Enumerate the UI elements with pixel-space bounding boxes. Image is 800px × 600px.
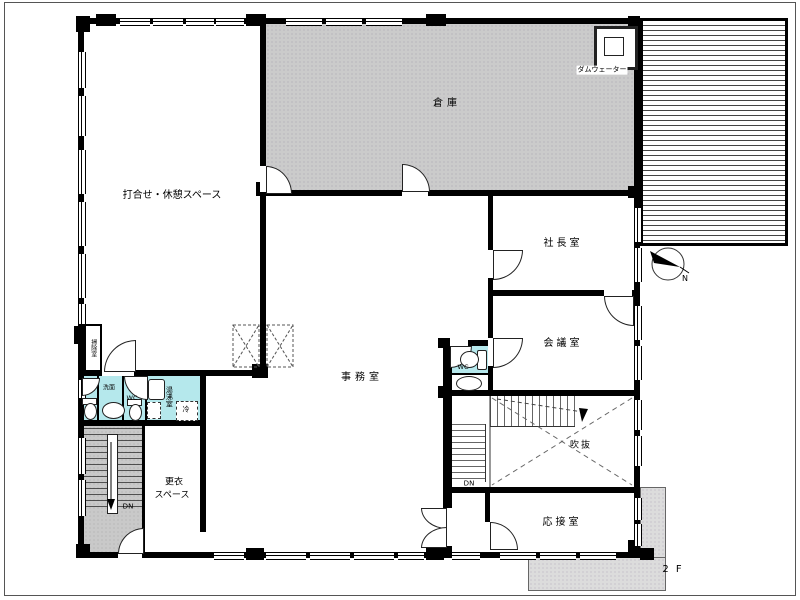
wall-reception-north <box>452 487 640 493</box>
label-atrium: 吹抜 <box>570 440 592 451</box>
column <box>426 548 444 560</box>
window <box>214 552 244 560</box>
label-changing-space-1: 更衣 <box>165 477 183 488</box>
column <box>76 16 90 32</box>
wall-junction <box>252 364 268 378</box>
column <box>246 548 264 560</box>
window <box>286 18 322 26</box>
window <box>398 552 424 560</box>
toilet-bowl-icon <box>129 404 142 421</box>
washbasin-icon <box>456 376 482 391</box>
label-washroom: 洗面 <box>103 384 115 392</box>
label-cleaning-room: 掃除室 <box>89 339 97 357</box>
window <box>326 18 362 26</box>
wall-corner-step <box>640 548 654 560</box>
label-office: 事務室 <box>341 372 383 385</box>
wall-reception-west <box>485 493 490 522</box>
wall-junction <box>438 386 452 398</box>
sink-unit-icon <box>148 379 165 400</box>
window <box>78 480 86 516</box>
column <box>426 14 446 26</box>
window <box>120 18 150 26</box>
dumbwaiter-car-icon <box>604 37 624 56</box>
label-stair-dn-left: DN <box>123 503 134 512</box>
window <box>78 150 86 194</box>
window <box>634 400 642 430</box>
window <box>366 18 402 26</box>
label-meeting-space: 打合せ・休憩スペース <box>123 190 222 203</box>
window <box>78 202 86 246</box>
window <box>452 552 480 560</box>
label-changing-space-2: スペース <box>155 490 190 501</box>
label-refrigerator: 冷 <box>183 406 190 415</box>
label-presidents-office: 社長室 <box>544 238 583 251</box>
window <box>634 306 642 340</box>
label-reception-room: 応接室 <box>543 517 582 530</box>
window <box>78 254 86 298</box>
window <box>266 552 306 560</box>
window <box>634 346 642 380</box>
column <box>96 14 116 26</box>
counter-dashed-icon <box>147 402 161 419</box>
column <box>76 544 90 558</box>
roof-hatch-area <box>640 18 788 246</box>
stair-handrail <box>107 434 118 514</box>
wall-warehouse-south <box>266 190 640 196</box>
label-floor-2f: 2 F <box>662 564 683 577</box>
wall-junction <box>438 338 450 348</box>
balcony-bottom <box>528 557 666 591</box>
label-wc-left: WC <box>127 394 138 402</box>
window <box>634 524 642 546</box>
window <box>634 248 642 282</box>
window <box>634 436 642 466</box>
toilet-bowl-icon <box>84 403 97 420</box>
window <box>78 304 86 324</box>
label-wc-office: WC <box>458 363 469 371</box>
stair-treads-right-lower <box>452 424 486 482</box>
label-warehouse: 倉庫 <box>433 98 461 111</box>
stair-treads-right-upper <box>490 396 575 427</box>
floor-plan-2f: 打合せ・休憩スペース 倉庫 ダムウェーター 社長室 会議室 事務室 吹抜 応接室… <box>0 0 800 600</box>
window <box>580 552 616 560</box>
window <box>354 552 394 560</box>
wall-junction <box>628 186 640 198</box>
wall-corridor-west-upper <box>443 396 452 508</box>
window <box>78 96 86 136</box>
label-dumbwaiter: ダムウェーター <box>577 66 628 75</box>
wall-changing-east <box>200 376 206 532</box>
washbasin-icon <box>102 402 125 419</box>
wall-right <box>634 18 640 558</box>
window <box>78 438 86 474</box>
window <box>153 18 183 26</box>
window <box>500 552 536 560</box>
label-conference-room: 会議室 <box>544 338 583 351</box>
label-kitchenette: 湯沸室 <box>165 387 174 408</box>
label-stair-dn-right: DN <box>464 480 475 489</box>
window <box>634 208 642 242</box>
window <box>540 552 576 560</box>
window <box>216 18 244 26</box>
window <box>310 552 350 560</box>
column <box>246 14 266 26</box>
wall-conference-south <box>443 390 640 396</box>
window <box>634 498 642 520</box>
window <box>78 52 86 88</box>
wall-meeting-east <box>260 24 266 370</box>
wall-wc-basin-divider <box>449 373 488 375</box>
window <box>186 18 214 26</box>
